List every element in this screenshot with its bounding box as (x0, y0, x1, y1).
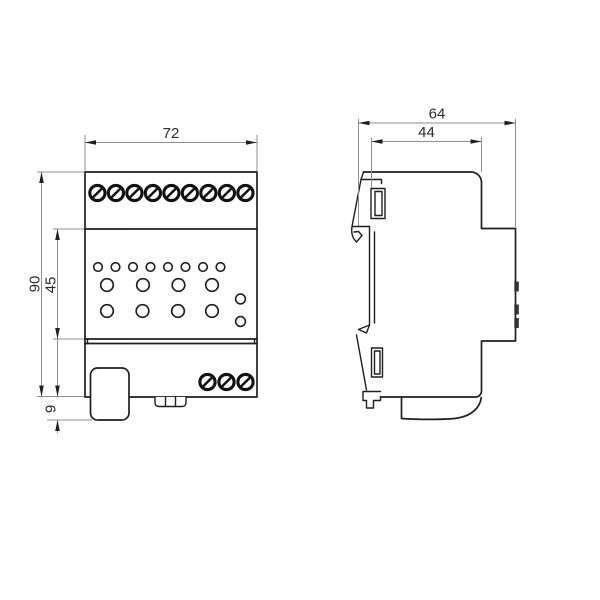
arrowhead (55, 229, 60, 240)
arrowhead (505, 121, 516, 126)
push-button (136, 305, 149, 318)
front-view: 72 90 45 9 (27, 125, 258, 433)
arrowhead (39, 386, 44, 397)
dimension-label: 9 (43, 405, 60, 413)
push-button (172, 279, 185, 292)
din-clip-tab (155, 397, 186, 407)
front-protrusion (91, 368, 130, 420)
dimension-label: 45 (43, 277, 60, 294)
arrowhead (55, 386, 60, 397)
led-indicator (181, 263, 190, 272)
arrowhead (55, 328, 60, 339)
dimension-label: 90 (27, 276, 44, 293)
arrowhead (372, 139, 383, 144)
led-indicator (94, 263, 103, 272)
arrowhead (39, 172, 44, 183)
push-button (101, 279, 114, 292)
clip-release-foot (363, 392, 381, 409)
clip-hook (352, 227, 362, 243)
tab (514, 305, 519, 315)
indicator (236, 317, 246, 327)
led-indicator (146, 263, 155, 272)
led-indicator (129, 263, 138, 272)
bottom-protrusion-profile (402, 397, 482, 419)
drawing-canvas: 72 90 45 9 (0, 0, 600, 600)
side-body-outline (364, 172, 516, 397)
mid-height-dimension: 45 (43, 229, 85, 397)
push-button (206, 279, 219, 292)
dimension-label: 44 (418, 124, 435, 141)
led-indicator (164, 263, 173, 272)
width-dimension: 72 (85, 125, 257, 171)
dimensional-drawing: 72 90 45 9 (0, 0, 600, 600)
push-button (137, 279, 150, 292)
clip-spring (359, 325, 370, 333)
side-view: 64 44 (352, 106, 519, 420)
led-indicator (216, 263, 225, 272)
indicator (236, 294, 246, 304)
arrowhead (85, 140, 96, 145)
push-button (101, 305, 114, 318)
dimension-label: 64 (429, 106, 446, 123)
arrowhead (246, 140, 257, 145)
arrowhead (471, 139, 482, 144)
arrowhead (55, 420, 60, 431)
dimension-label: 72 (163, 125, 180, 142)
push-button (172, 305, 185, 318)
arrowhead (359, 121, 370, 126)
tab (514, 282, 519, 292)
led-indicator (111, 263, 120, 272)
clip-lower-edge (357, 335, 367, 390)
tab (514, 318, 519, 328)
front-face-tabs (514, 282, 519, 329)
push-button (206, 305, 219, 318)
led-indicator (199, 263, 208, 272)
